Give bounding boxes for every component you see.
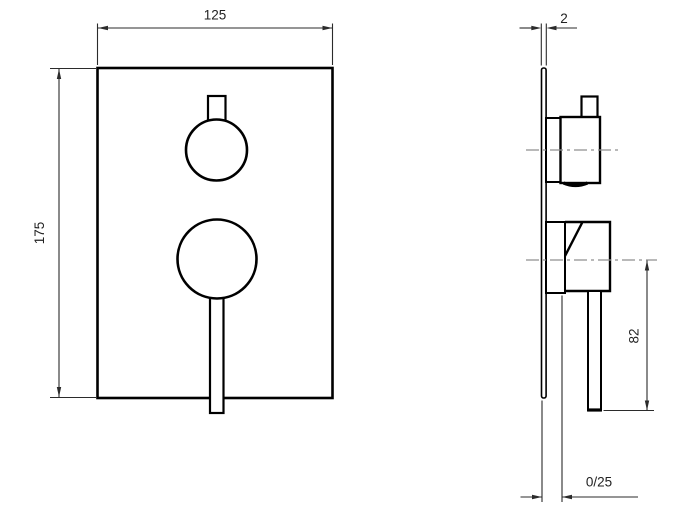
arrowhead-right-icon <box>532 495 542 499</box>
lower-handle-circle <box>178 220 257 299</box>
arrowhead-down-icon <box>57 387 61 397</box>
dimension-front-height: 175 <box>32 69 96 398</box>
arrowhead-left-icon <box>98 26 108 30</box>
lower-handle-body-side <box>565 222 610 291</box>
arrowhead-right-icon <box>323 26 333 30</box>
arrowhead-right-icon <box>531 26 541 30</box>
lower-handle-flange-side <box>546 222 565 293</box>
arrowhead-left-icon <box>547 26 557 30</box>
dimension-label-handle-length: 82 <box>627 328 642 343</box>
arrowhead-down-icon <box>645 401 649 411</box>
dimension-plate-thickness: 2 <box>520 11 578 66</box>
lever-rod-side <box>588 291 601 411</box>
side-view <box>526 68 657 411</box>
upper-knob-circle <box>186 120 247 181</box>
dimension-label-plate-thickness: 2 <box>560 11 568 26</box>
technical-drawing: 125 175 2 <box>0 0 676 507</box>
dimension-label-depth-adjustment: 0/25 <box>586 475 612 490</box>
drawing-canvas: 125 175 2 <box>0 0 676 507</box>
dimension-depth-adjustment: 0/25 <box>521 296 639 503</box>
dimension-label-front-width: 125 <box>204 8 227 23</box>
arrowhead-up-icon <box>57 69 61 79</box>
arrowhead-left-icon <box>562 495 572 499</box>
arrowhead-up-icon <box>645 261 649 271</box>
dimension-label-front-height: 175 <box>32 222 47 245</box>
dimension-front-width: 125 <box>98 8 333 66</box>
front-view <box>98 68 333 413</box>
